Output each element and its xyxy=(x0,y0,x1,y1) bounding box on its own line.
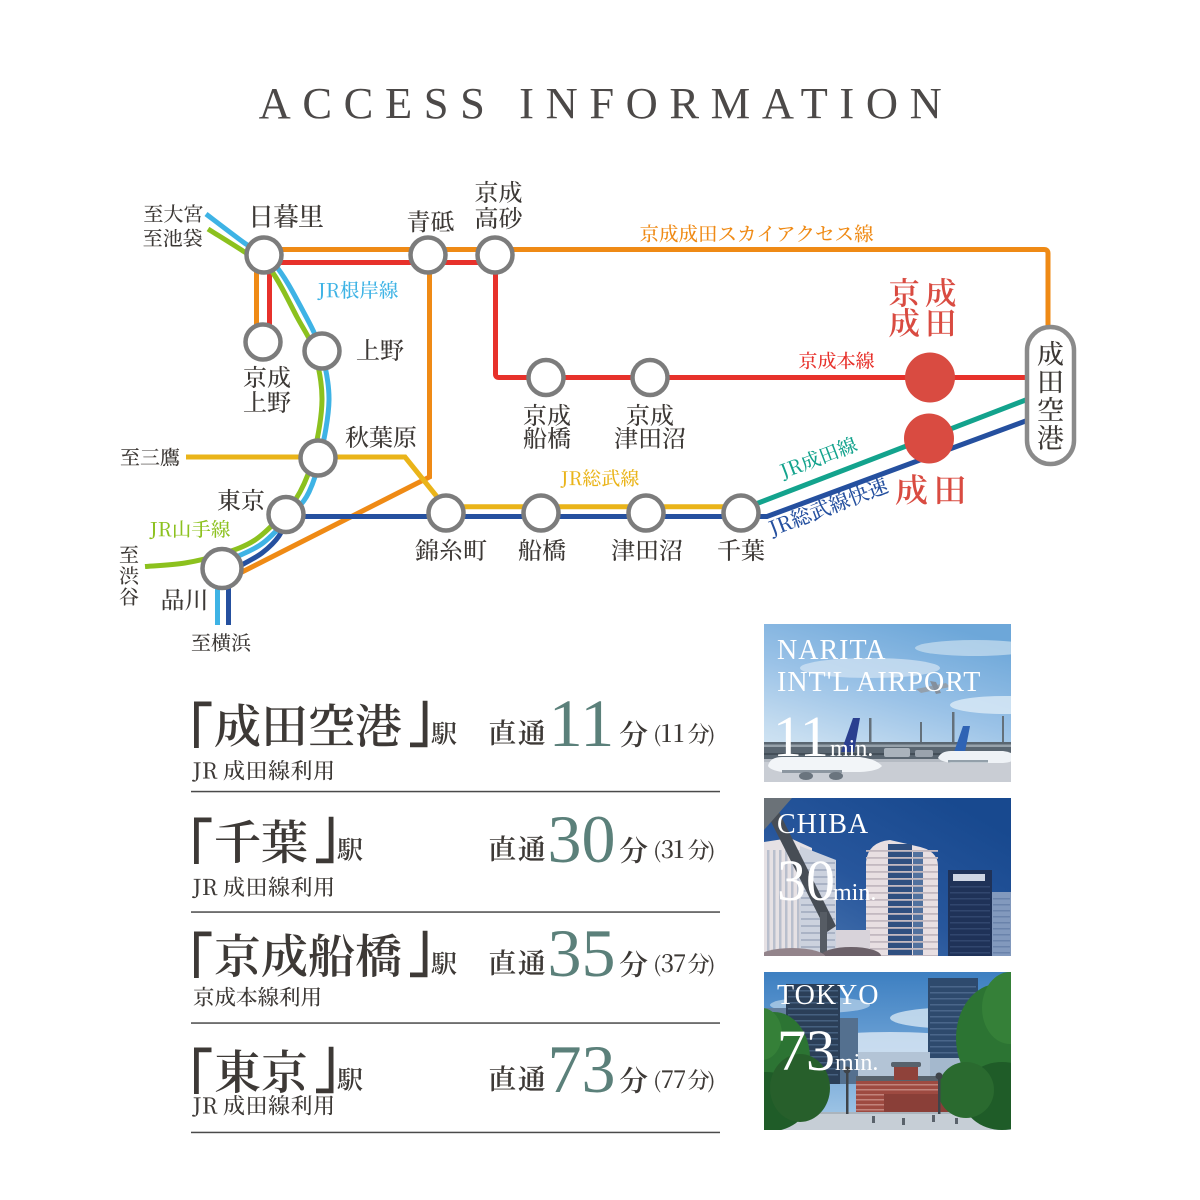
svg-text:ACCESS INFORMATION: ACCESS INFORMATION xyxy=(259,78,954,128)
svg-text:INT'L AIRPORT: INT'L AIRPORT xyxy=(777,667,981,698)
svg-text:CHIBA: CHIBA xyxy=(777,809,869,840)
svg-text:min.: min. xyxy=(833,880,876,906)
svg-text:11: 11 xyxy=(773,704,829,769)
svg-text:min.: min. xyxy=(830,736,873,762)
svg-text:30: 30 xyxy=(777,848,835,913)
svg-text:73: 73 xyxy=(548,1031,616,1107)
svg-text:TOKYO: TOKYO xyxy=(777,980,879,1011)
svg-text:35: 35 xyxy=(548,915,616,991)
svg-text:30: 30 xyxy=(548,801,616,877)
svg-text:NARITA: NARITA xyxy=(777,635,887,666)
svg-text:11: 11 xyxy=(549,685,614,761)
svg-text:min.: min. xyxy=(835,1050,878,1076)
svg-text:73: 73 xyxy=(777,1018,835,1083)
